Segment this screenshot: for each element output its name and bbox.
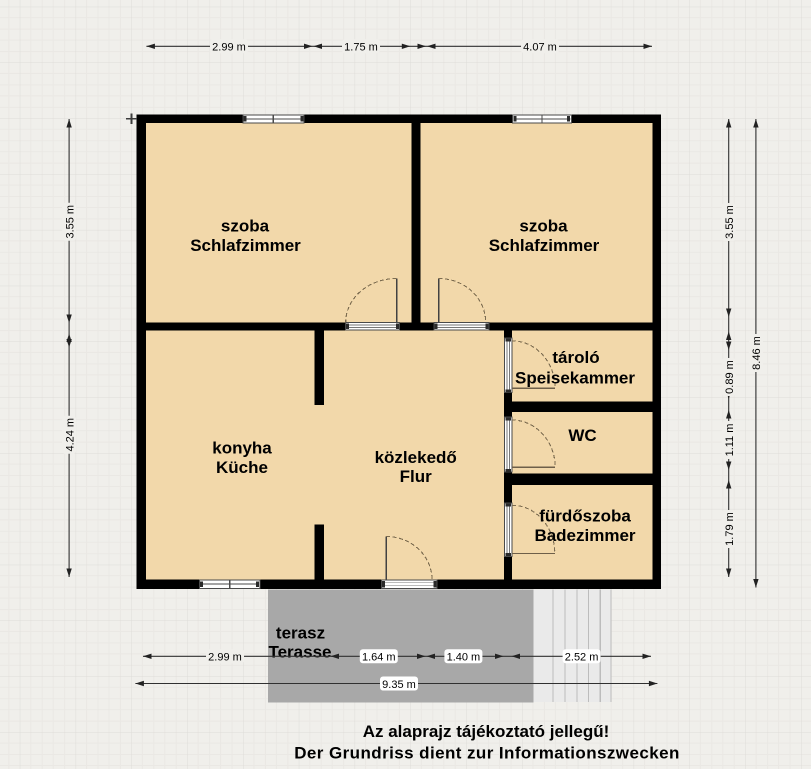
svg-text:9.35 m: 9.35 m <box>382 679 416 691</box>
svg-text:2.99 m: 2.99 m <box>208 652 242 664</box>
svg-text:0.89 m: 0.89 m <box>724 360 736 394</box>
svg-text:3.55 m: 3.55 m <box>724 205 736 239</box>
svg-text:Flur: Flur <box>400 467 432 486</box>
svg-text:1.75 m: 1.75 m <box>344 42 378 54</box>
svg-text:1.64 m: 1.64 m <box>362 652 396 664</box>
svg-text:4.24 m: 4.24 m <box>64 418 76 452</box>
svg-text:Schlafzimmer: Schlafzimmer <box>190 236 301 255</box>
svg-text:szoba: szoba <box>519 217 568 236</box>
svg-text:Schlafzimmer: Schlafzimmer <box>489 236 600 255</box>
svg-text:közlekedő: közlekedő <box>375 448 457 467</box>
svg-text:terasz: terasz <box>276 624 325 643</box>
svg-text:konyha: konyha <box>212 439 272 458</box>
svg-text:4.07 m: 4.07 m <box>523 42 557 54</box>
svg-text:2.52 m: 2.52 m <box>565 652 599 664</box>
svg-text:Der Grundriss dient zur Inform: Der Grundriss dient zur Informationszwec… <box>294 744 680 763</box>
svg-text:WC: WC <box>568 426 596 445</box>
svg-text:Terasse: Terasse <box>268 643 331 662</box>
svg-text:fürdőszoba: fürdőszoba <box>539 507 631 526</box>
svg-text:szoba: szoba <box>221 217 270 236</box>
svg-text:1.11 m: 1.11 m <box>724 424 736 457</box>
svg-text:3.55 m: 3.55 m <box>64 205 76 239</box>
svg-text:1.79 m: 1.79 m <box>724 512 736 546</box>
svg-text:1.40 m: 1.40 m <box>447 652 481 664</box>
svg-text:tároló: tároló <box>552 348 599 367</box>
svg-text:Az alaprajz tájékoztató jelleg: Az alaprajz tájékoztató jellegű! <box>363 722 610 741</box>
svg-text:Küche: Küche <box>216 458 268 477</box>
svg-text:Speisekammer: Speisekammer <box>515 369 635 388</box>
svg-text:Badezimmer: Badezimmer <box>534 526 635 545</box>
svg-text:2.99 m: 2.99 m <box>212 42 246 54</box>
svg-text:8.46 m: 8.46 m <box>751 336 763 370</box>
